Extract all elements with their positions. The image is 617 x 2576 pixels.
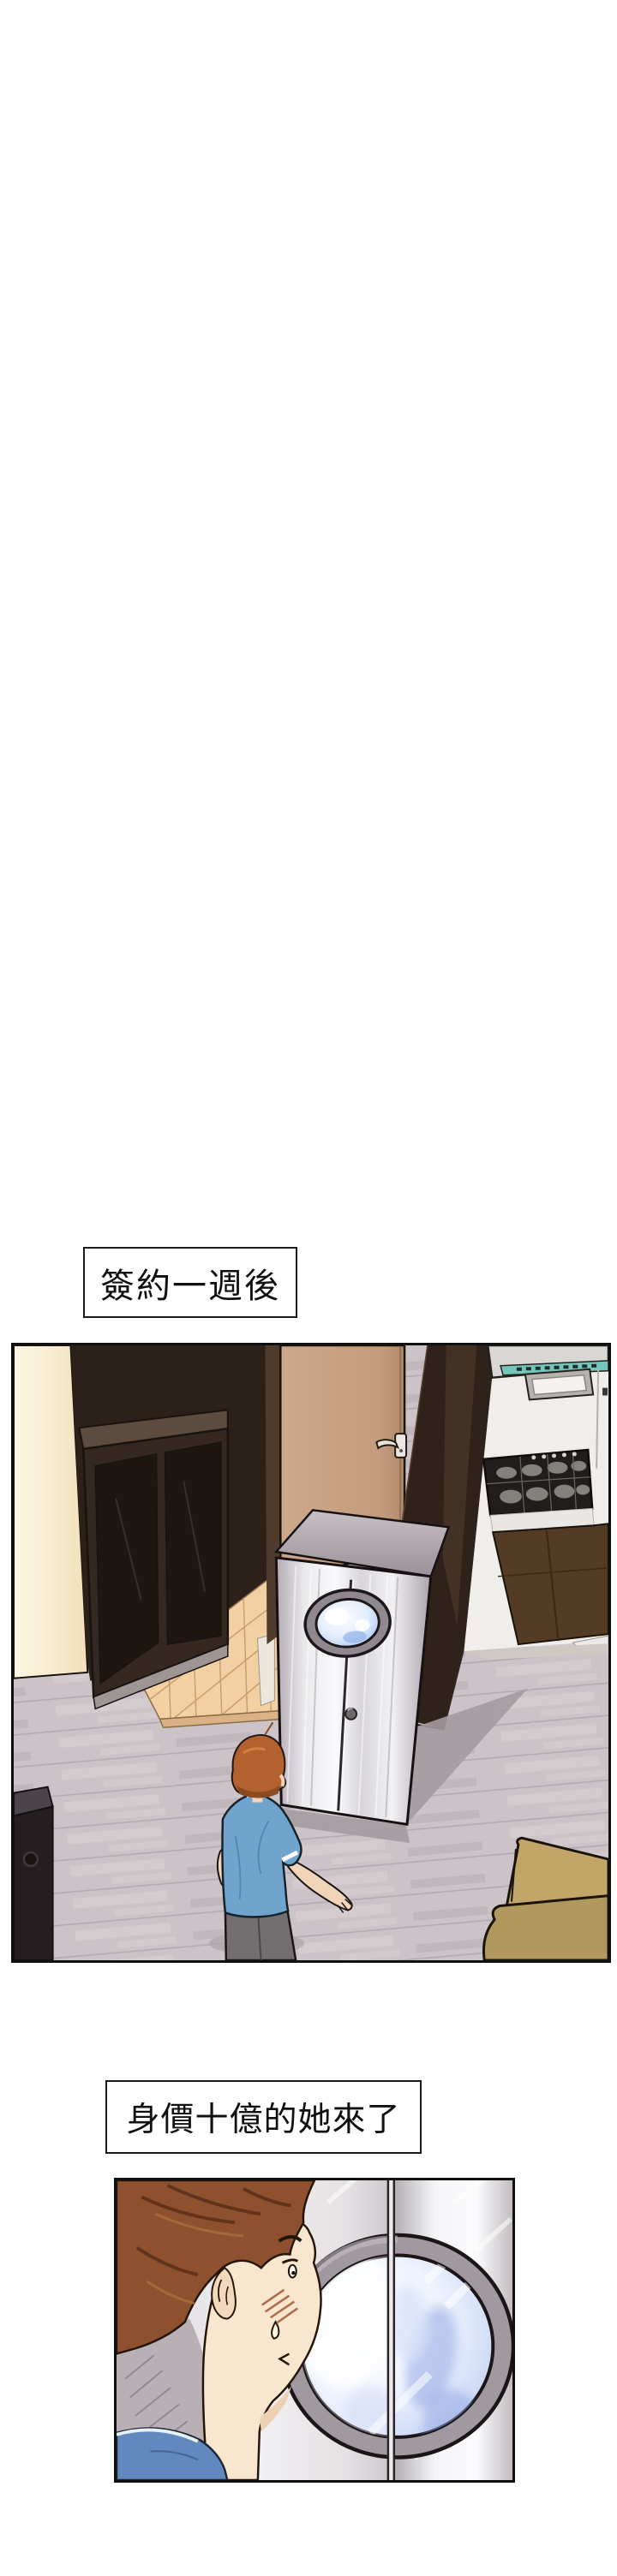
closeup-illustration <box>117 2180 512 2480</box>
caption-box-she-came: 身價十億的她來了 <box>105 2080 422 2154</box>
door-seam <box>387 2180 395 2480</box>
dresser-glass-left <box>95 1454 158 1684</box>
gas-stove <box>483 1450 592 1515</box>
panel-closeup-porthole <box>114 2178 515 2483</box>
caption-text: 簽約一週後 <box>100 1258 280 1308</box>
doorframe-baseboard <box>258 1634 275 1705</box>
panel-room-with-capsule <box>11 1343 611 1963</box>
speaker-box <box>14 1787 53 1960</box>
dark-dresser <box>79 1410 228 1708</box>
dresser-glass-right <box>165 1442 220 1644</box>
caption-text: 身價十億的她來了 <box>126 2093 400 2141</box>
caption-box-one-week-after: 簽約一週後 <box>83 1247 297 1318</box>
room-illustration <box>14 1345 608 1960</box>
capsule-knob <box>345 1708 356 1720</box>
comic-page: 簽約一週後 <box>0 0 617 2576</box>
eye <box>289 2265 297 2278</box>
